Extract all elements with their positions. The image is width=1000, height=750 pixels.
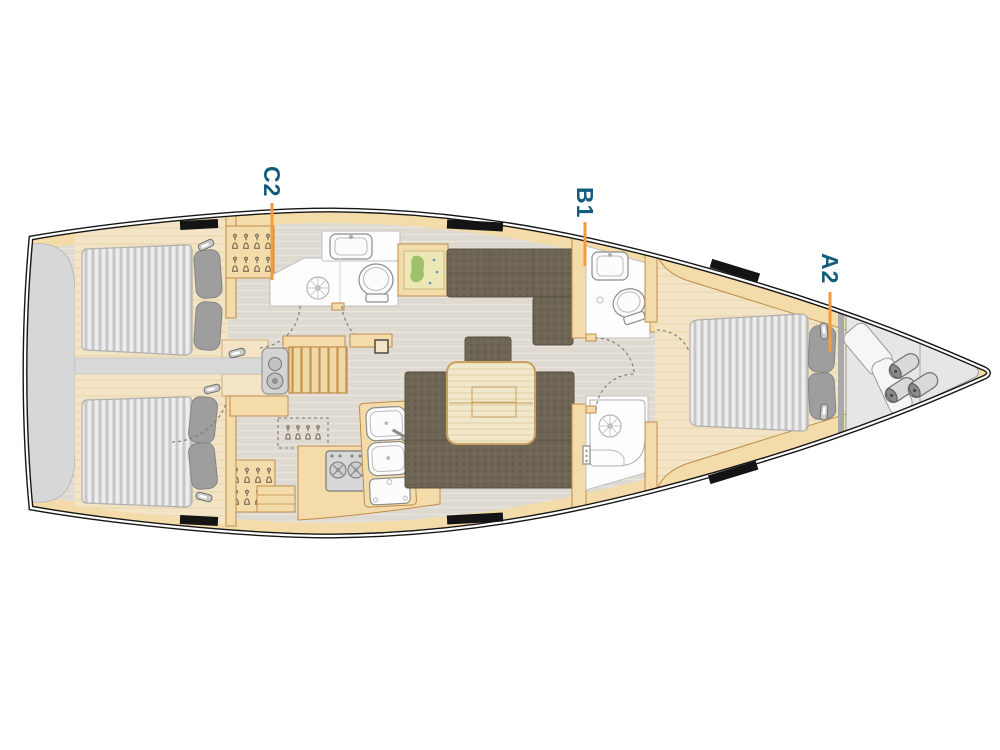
pillow <box>188 396 219 444</box>
label-c2: C2 <box>259 166 285 197</box>
step-lip <box>283 336 345 348</box>
double-berth-mattress <box>82 397 192 507</box>
companionway-steps <box>289 347 347 393</box>
stove-icon <box>326 451 366 491</box>
yacht-floor-plan: C2 B1 A2 <box>0 0 1000 750</box>
label-a2: A2 <box>817 253 843 284</box>
hull-interior <box>0 200 1000 550</box>
pillow <box>193 249 222 299</box>
double-berth-mattress <box>690 314 808 431</box>
pillow <box>188 442 219 490</box>
pillow <box>193 301 222 351</box>
aft-cabin-port <box>75 216 228 358</box>
bow-locker <box>841 306 979 438</box>
double-berth-mattress <box>82 245 192 355</box>
headboard-wall <box>838 304 844 442</box>
sink-icon <box>592 252 628 280</box>
salon-table <box>447 362 535 444</box>
forward-cabin <box>645 248 846 496</box>
yacht-floor-plan-page: C2 B1 A2 <box>0 0 1000 750</box>
mid-cabinet <box>222 374 268 396</box>
engine-passage <box>75 358 267 374</box>
nautical-chart-icon <box>404 251 444 289</box>
shower-drain-icon <box>307 277 329 299</box>
bulkhead <box>645 422 657 496</box>
cabinet <box>230 396 288 416</box>
label-b1: B1 <box>572 187 598 218</box>
mast-post <box>375 340 388 353</box>
chart-table <box>398 244 448 296</box>
door <box>586 334 596 341</box>
hatch-latch-icon <box>820 323 828 340</box>
swim-platform <box>27 244 75 503</box>
door <box>586 406 596 413</box>
bulkhead <box>645 248 657 322</box>
drawer-stack <box>257 486 295 512</box>
hatch-latch-icon <box>820 404 828 421</box>
sink-icon <box>330 234 372 259</box>
fridge-icon <box>369 477 410 505</box>
shower-drain-icon <box>599 415 621 437</box>
